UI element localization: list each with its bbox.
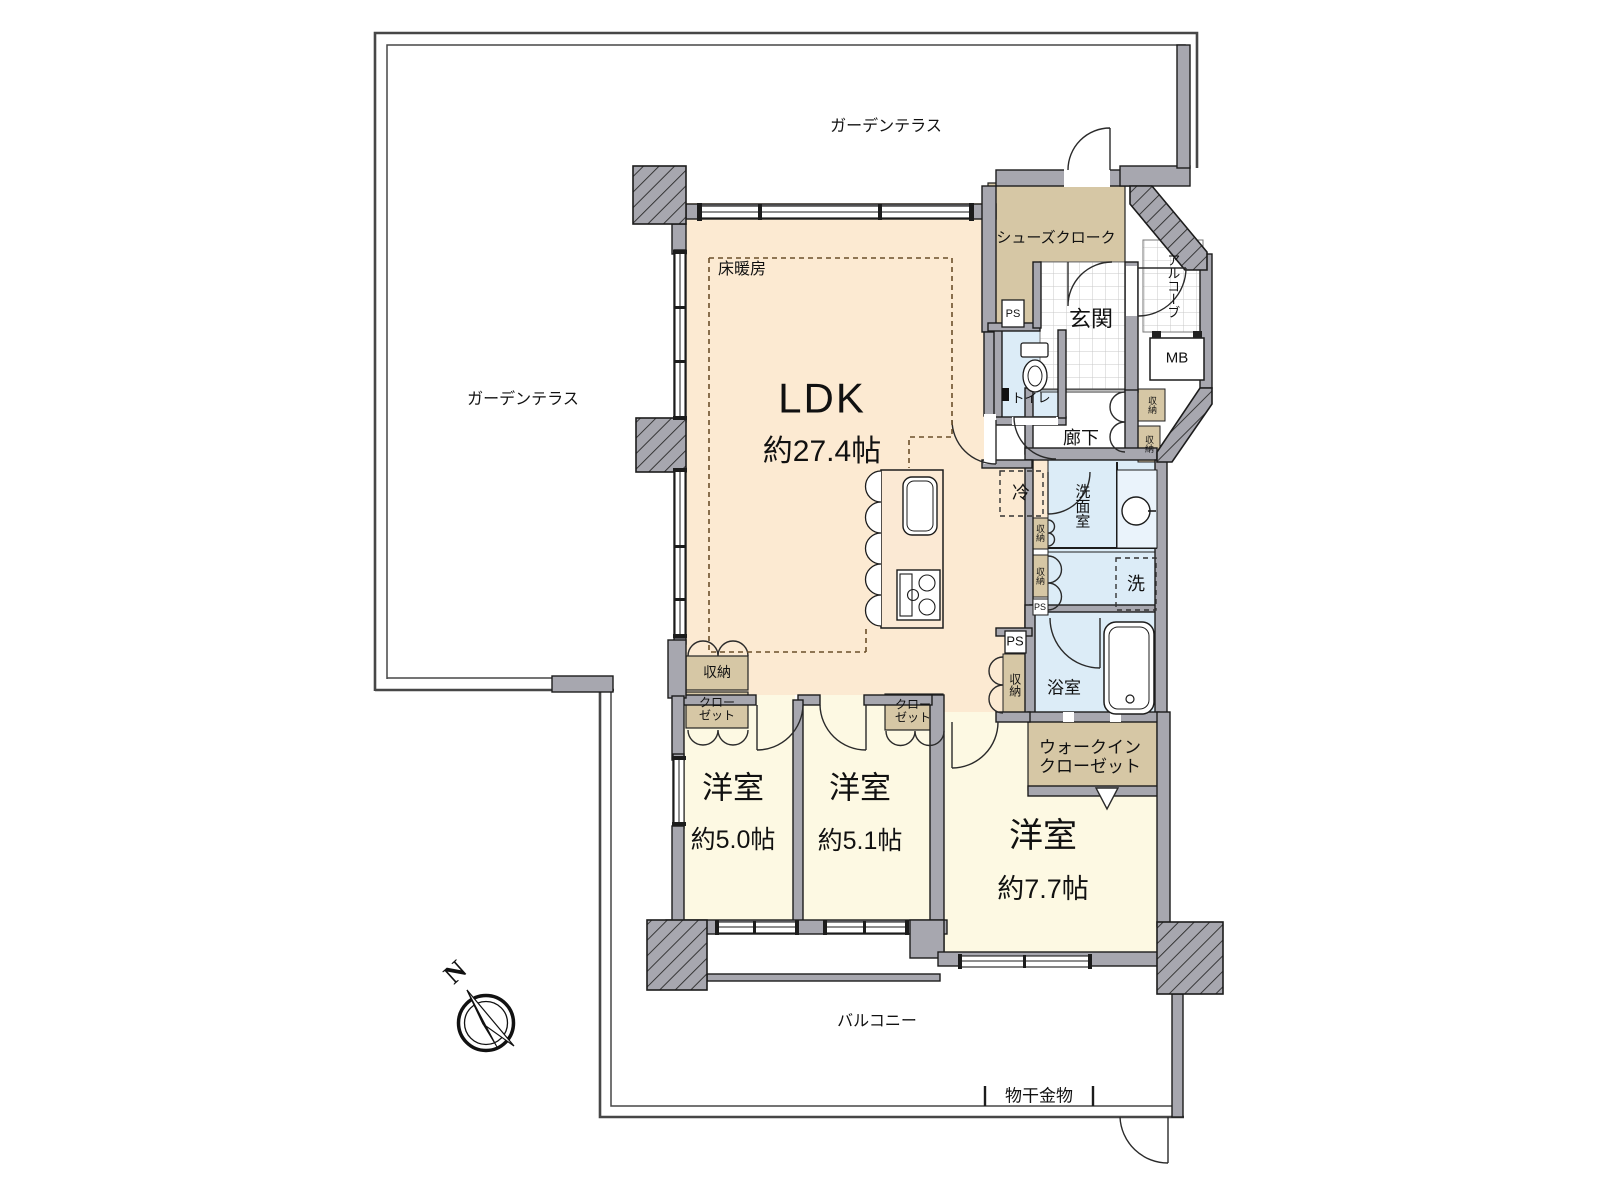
floor-plan: ガーデンテラス ガーデンテラス 床暖房 LDK 約27.4帖 冷 シューズクロー…: [0, 0, 1600, 1200]
bathtub-icon: [1104, 622, 1154, 714]
mb-box: [1150, 331, 1204, 380]
storage-tall: [1003, 654, 1025, 716]
genkan-tile: [1040, 262, 1125, 390]
window-bedroom3-bottom: [958, 954, 1092, 969]
toilet-paper-icon: [1002, 388, 1009, 401]
storage-cell-2: [1033, 555, 1048, 597]
ps-box-top: [1002, 300, 1024, 327]
kitchen-sink-icon: [903, 477, 937, 535]
kitchen-island-icon: [865, 470, 943, 628]
door-terrace-entry: [1068, 128, 1110, 170]
storage-wic: [1028, 718, 1157, 790]
floor-plan-drawing: [0, 0, 1600, 1200]
room-bedroom1-floor: [674, 695, 795, 925]
storage-cell-1: [1033, 518, 1048, 549]
pillar-top-left: [633, 166, 686, 224]
storage-hall-1: [1138, 389, 1165, 421]
window-bedroom1-left: [672, 756, 686, 826]
pillar-mid-left: [636, 418, 686, 472]
window-ldk-top: [697, 203, 974, 221]
storage-bedroom1-shunou: [686, 656, 748, 690]
washbasin-icon: [1117, 470, 1157, 548]
pillar-bottom-left: [647, 920, 707, 990]
door-balcony-partition: [1120, 1117, 1168, 1163]
compass-icon: [459, 990, 515, 1051]
ps-box-low: [1005, 631, 1026, 653]
room-laundry-floor: [1048, 552, 1157, 612]
window-left-2: [673, 468, 687, 638]
pillar-bottom-right: [1157, 922, 1223, 994]
window-bedroom1-bottom: [715, 920, 799, 935]
ps-box-mid: [1033, 599, 1048, 615]
door-hall-storage: [1110, 392, 1125, 452]
stove-icon: [897, 570, 940, 620]
window-bedroom2-bottom: [823, 920, 909, 935]
window-left-1: [673, 250, 687, 420]
